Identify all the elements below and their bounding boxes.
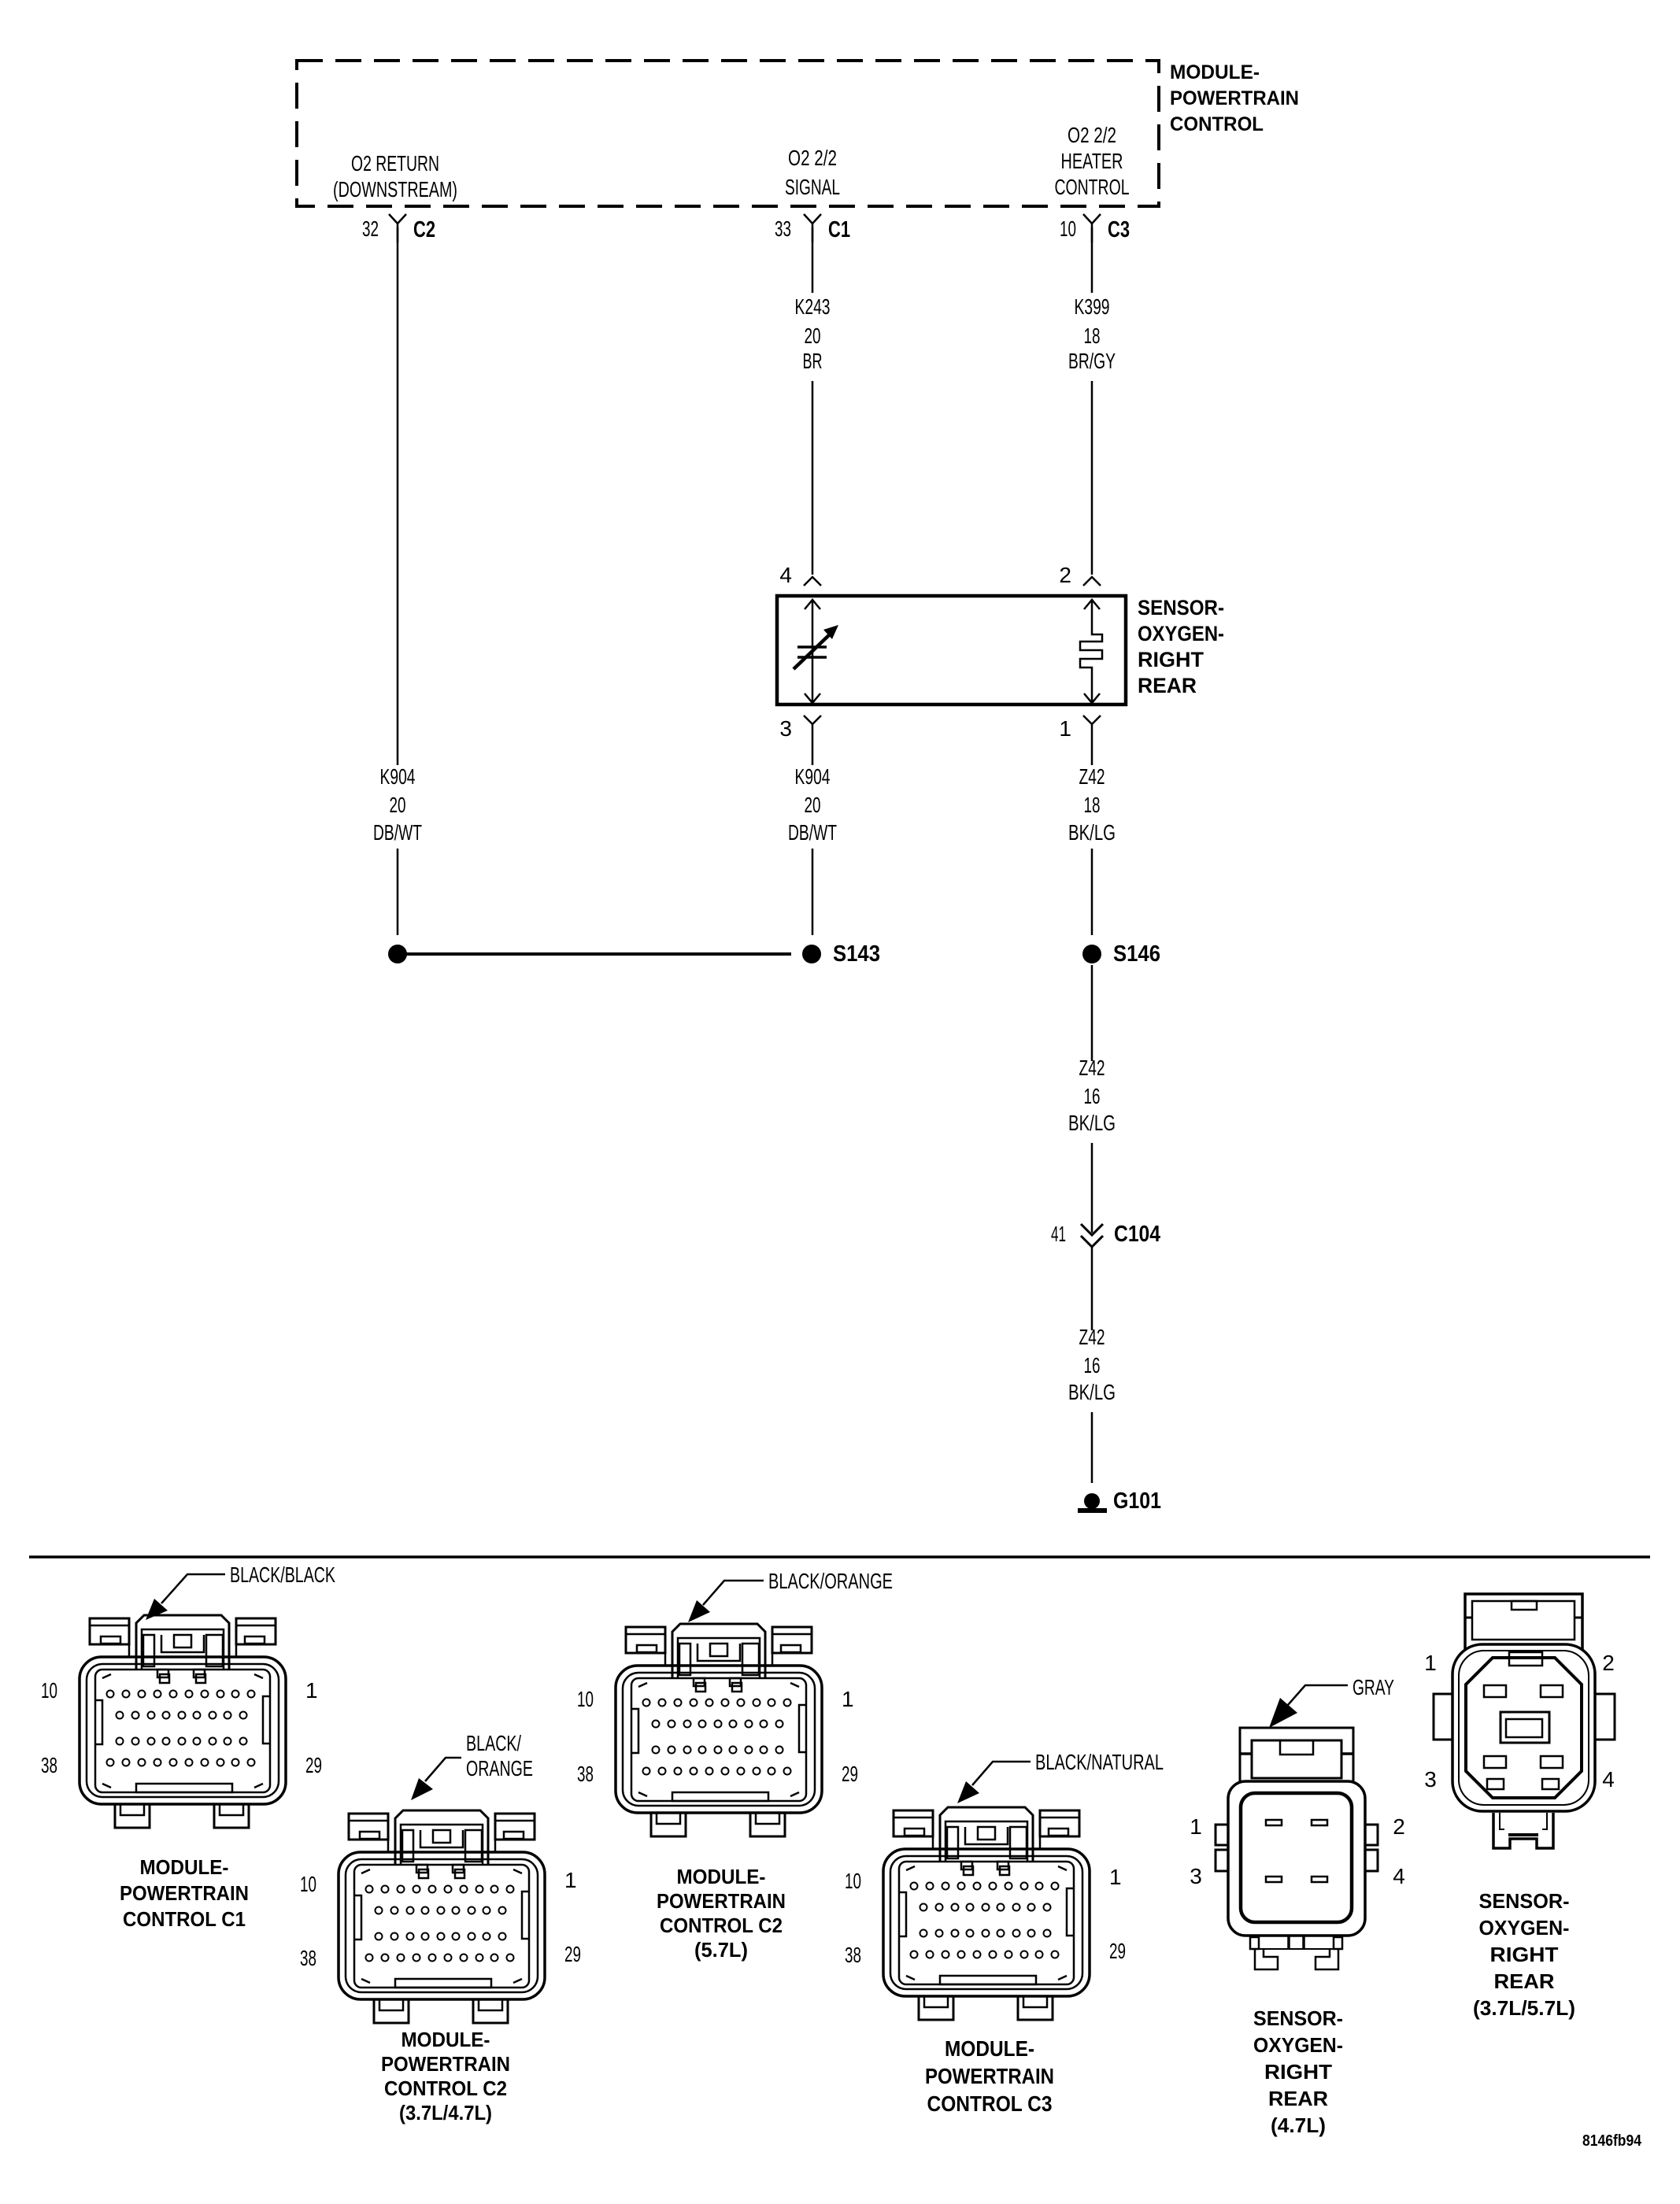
svg-text:(3.7L/4.7L): (3.7L/4.7L) (399, 2101, 492, 2124)
svg-text:MODULE-: MODULE- (945, 2036, 1034, 2061)
svg-text:HEATER: HEATER (1061, 149, 1123, 173)
svg-text:C2: C2 (413, 217, 435, 242)
svg-text:S146: S146 (1113, 941, 1160, 967)
svg-text:4: 4 (1393, 1864, 1405, 1888)
svg-text:BLACK/ORANGE: BLACK/ORANGE (768, 1569, 893, 1593)
svg-text:10: 10 (1060, 216, 1076, 241)
svg-text:10: 10 (845, 1869, 861, 1893)
svg-text:4: 4 (779, 563, 792, 587)
svg-text:BK/LG: BK/LG (1068, 1380, 1116, 1404)
svg-text:O2 RETURN: O2 RETURN (351, 151, 439, 176)
svg-text:REAR: REAR (1268, 2087, 1328, 2110)
svg-text:MODULE-: MODULE- (677, 1865, 766, 1888)
svg-text:O2 2/2: O2 2/2 (788, 146, 837, 170)
svg-text:OXYGEN-: OXYGEN- (1138, 622, 1224, 645)
svg-text:BLACK/: BLACK/ (466, 1731, 521, 1755)
svg-text:SENSOR-: SENSOR- (1479, 1889, 1570, 1913)
svg-text:1: 1 (1059, 716, 1071, 741)
svg-text:MODULE-: MODULE- (1170, 61, 1260, 83)
svg-text:1: 1 (564, 1868, 577, 1892)
svg-text:O2 2/2: O2 2/2 (1068, 123, 1116, 147)
svg-text:38: 38 (41, 1753, 57, 1777)
svg-text:1: 1 (842, 1687, 854, 1711)
svg-text:33: 33 (775, 216, 791, 241)
svg-text:DB/WT: DB/WT (373, 820, 422, 845)
svg-text:1: 1 (1190, 1814, 1202, 1839)
svg-text:20: 20 (805, 793, 821, 817)
svg-text:BLACK/BLACK: BLACK/BLACK (230, 1562, 335, 1587)
svg-text:2: 2 (1393, 1814, 1405, 1839)
svg-text:BLACK/NATURAL: BLACK/NATURAL (1035, 1750, 1164, 1774)
svg-text:K243: K243 (795, 294, 831, 319)
svg-text:29: 29 (305, 1753, 322, 1777)
svg-text:RIGHT: RIGHT (1490, 1943, 1559, 1966)
svg-text:POWERTRAIN: POWERTRAIN (381, 2052, 510, 2076)
svg-text:G101: G101 (1113, 1488, 1161, 1514)
svg-text:41: 41 (1051, 1222, 1066, 1246)
svg-text:(3.7L/5.7L): (3.7L/5.7L) (1473, 1996, 1575, 2020)
svg-text:32: 32 (362, 216, 379, 241)
svg-text:16: 16 (1084, 1084, 1101, 1108)
svg-text:POWERTRAIN: POWERTRAIN (1170, 87, 1299, 109)
svg-text:POWERTRAIN: POWERTRAIN (657, 1889, 786, 1913)
svg-text:REAR: REAR (1494, 1969, 1555, 1993)
svg-text:38: 38 (300, 1946, 316, 1970)
svg-text:RIGHT: RIGHT (1264, 2060, 1332, 2084)
svg-text:K904: K904 (380, 764, 416, 789)
svg-text:CONTROL C1: CONTROL C1 (123, 1907, 246, 1931)
svg-text:3: 3 (1190, 1864, 1202, 1888)
svg-text:K904: K904 (795, 764, 831, 789)
svg-text:MODULE-: MODULE- (140, 1855, 229, 1879)
svg-text:CONTROL C2: CONTROL C2 (384, 2076, 507, 2100)
svg-text:BR/GY: BR/GY (1068, 349, 1116, 373)
svg-text:RIGHT: RIGHT (1138, 648, 1204, 671)
svg-text:OXYGEN-: OXYGEN- (1253, 2033, 1343, 2057)
svg-text:POWERTRAIN: POWERTRAIN (120, 1881, 249, 1905)
svg-text:Z42: Z42 (1079, 764, 1105, 789)
svg-text:18: 18 (1084, 793, 1101, 817)
svg-text:S143: S143 (833, 941, 880, 967)
svg-text:(DOWNSTREAM): (DOWNSTREAM) (333, 177, 457, 202)
svg-text:CONTROL C3: CONTROL C3 (927, 2091, 1053, 2116)
svg-text:ORANGE: ORANGE (466, 1756, 533, 1781)
svg-text:1: 1 (1424, 1651, 1437, 1675)
svg-text:(5.7L): (5.7L) (694, 1938, 748, 1962)
svg-text:BK/LG: BK/LG (1068, 1111, 1116, 1135)
svg-text:POWERTRAIN: POWERTRAIN (925, 2064, 1054, 2088)
svg-text:Z42: Z42 (1079, 1056, 1105, 1080)
svg-text:1: 1 (1109, 1865, 1122, 1889)
svg-text:CONTROL C2: CONTROL C2 (660, 1914, 783, 1937)
svg-text:20: 20 (805, 324, 821, 348)
svg-text:CONTROL: CONTROL (1170, 113, 1264, 135)
svg-text:20: 20 (390, 793, 406, 817)
svg-text:38: 38 (577, 1762, 594, 1786)
svg-text:16: 16 (1084, 1353, 1101, 1377)
svg-text:(4.7L): (4.7L) (1271, 2113, 1326, 2137)
svg-text:10: 10 (577, 1687, 594, 1711)
svg-text:2: 2 (1059, 563, 1071, 587)
svg-text:OXYGEN-: OXYGEN- (1479, 1916, 1570, 1940)
svg-text:BR: BR (803, 349, 823, 373)
svg-text:38: 38 (845, 1943, 861, 1967)
svg-text:29: 29 (842, 1762, 858, 1786)
svg-text:10: 10 (300, 1872, 316, 1896)
svg-text:3: 3 (1424, 1767, 1437, 1792)
svg-text:SENSOR-: SENSOR- (1253, 2006, 1343, 2030)
svg-text:4: 4 (1602, 1767, 1615, 1792)
svg-text:1: 1 (305, 1678, 318, 1703)
svg-text:29: 29 (1109, 1939, 1126, 1963)
svg-text:BK/LG: BK/LG (1068, 820, 1116, 845)
svg-text:SENSOR-: SENSOR- (1138, 596, 1224, 619)
svg-text:10: 10 (41, 1678, 57, 1703)
svg-text:DB/WT: DB/WT (788, 820, 837, 845)
svg-text:3: 3 (779, 716, 792, 741)
svg-text:REAR: REAR (1138, 674, 1197, 697)
svg-text:SIGNAL: SIGNAL (785, 175, 840, 199)
svg-text:CONTROL: CONTROL (1055, 175, 1130, 199)
svg-text:C1: C1 (828, 217, 850, 242)
svg-text:18: 18 (1084, 324, 1101, 348)
svg-text:C104: C104 (1114, 1222, 1160, 1247)
svg-text:C3: C3 (1108, 217, 1130, 242)
svg-text:29: 29 (564, 1942, 581, 1966)
svg-text:MODULE-: MODULE- (401, 2028, 490, 2051)
svg-text:Z42: Z42 (1079, 1325, 1105, 1349)
svg-text:GRAY: GRAY (1353, 1675, 1394, 1699)
svg-text:K399: K399 (1075, 294, 1110, 319)
svg-text:8146fb94: 8146fb94 (1582, 2132, 1642, 2150)
svg-text:2: 2 (1602, 1651, 1615, 1675)
